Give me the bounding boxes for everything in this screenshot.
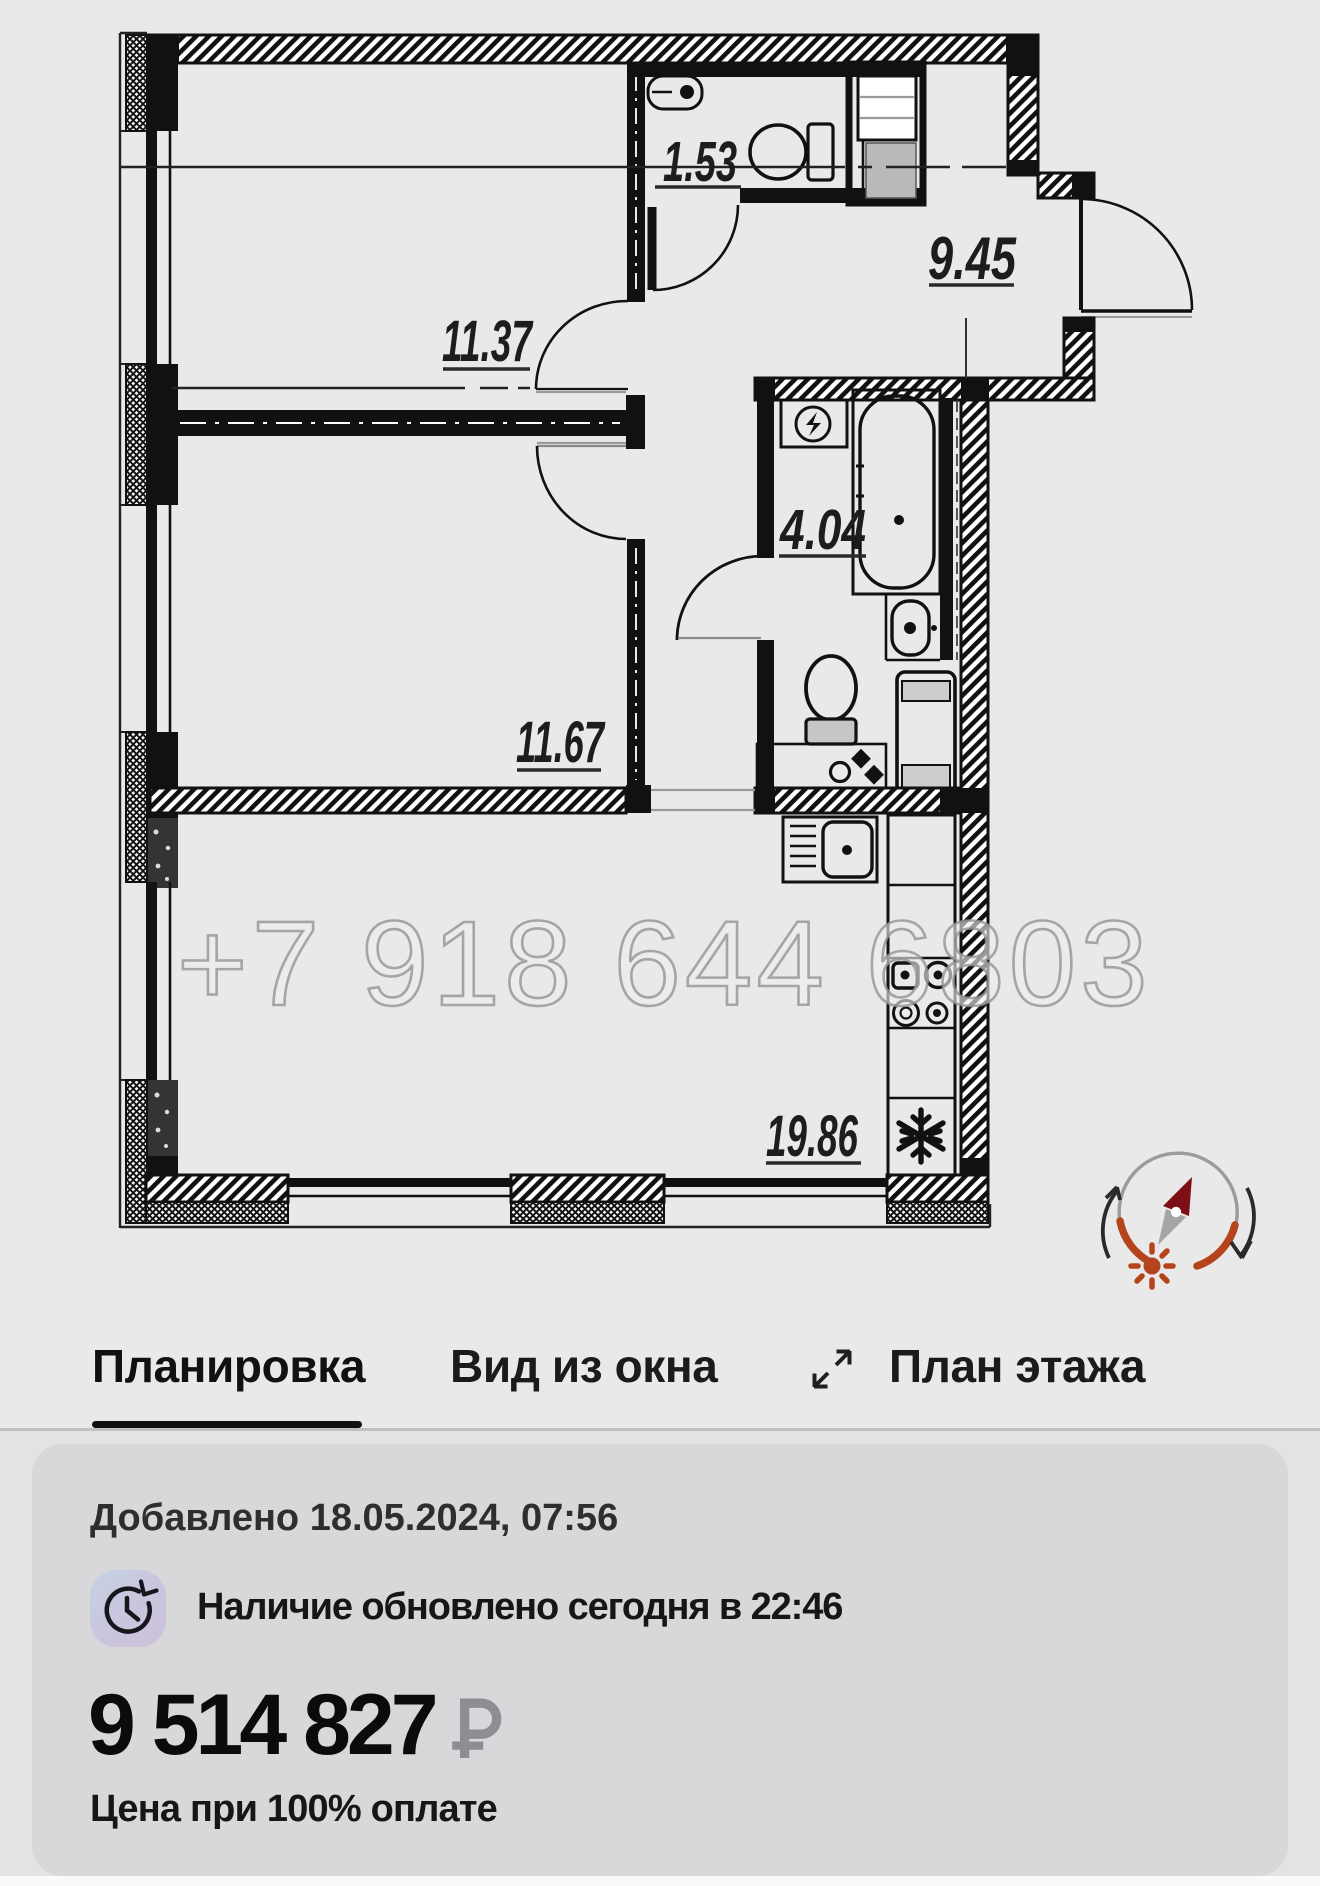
svg-text:1.53: 1.53 bbox=[663, 130, 737, 194]
svg-text:+7 918 644 6803: +7 918 644 6803 bbox=[177, 895, 1152, 1031]
svg-text:9.45: 9.45 bbox=[928, 225, 1017, 292]
svg-text:11.37: 11.37 bbox=[442, 309, 534, 374]
svg-text:19.86: 19.86 bbox=[766, 1104, 858, 1169]
svg-text:4.04: 4.04 bbox=[779, 498, 866, 562]
svg-text:11.67: 11.67 bbox=[516, 710, 606, 775]
